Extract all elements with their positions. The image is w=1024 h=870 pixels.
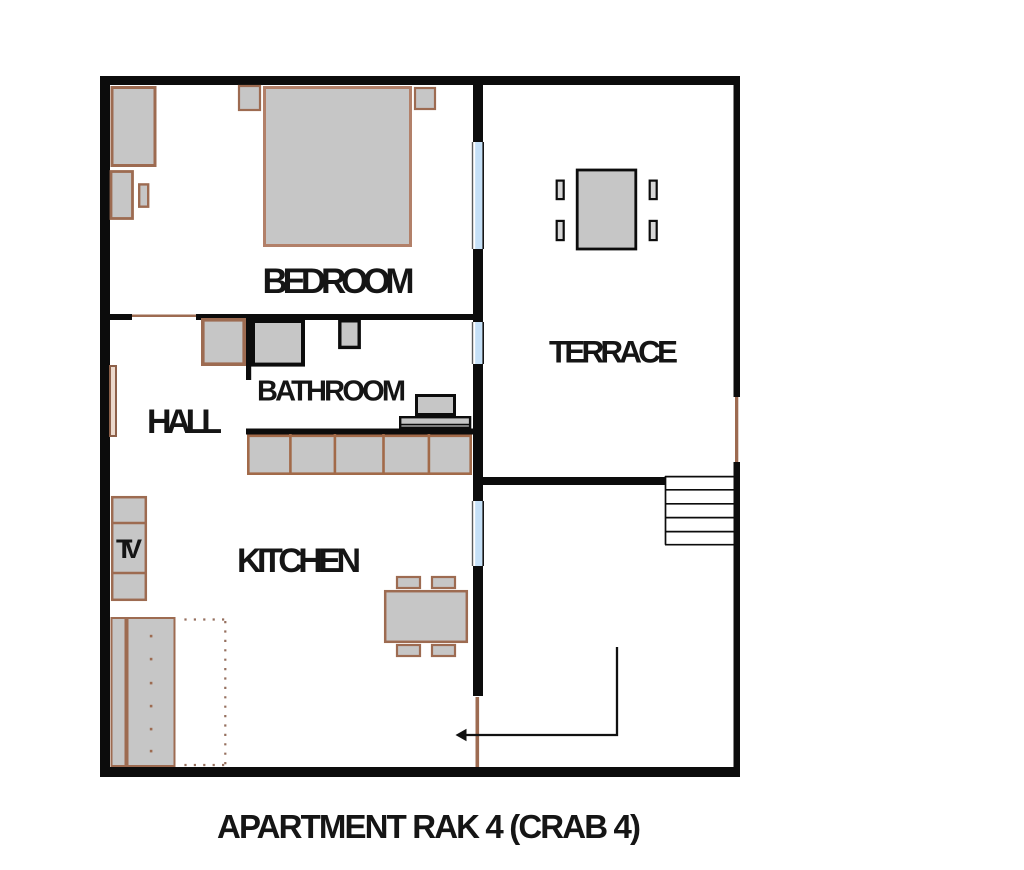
svg-text:TV: TV — [116, 534, 142, 564]
svg-text:BEDROOM: BEDROOM — [263, 262, 415, 301]
svg-text:APARTMENT RAK 4 (CRAB 4): APARTMENT RAK 4 (CRAB 4) — [217, 808, 641, 845]
svg-text:TERRACE: TERRACE — [549, 334, 678, 370]
svg-text:BATHROOM: BATHROOM — [257, 376, 406, 408]
svg-text:KITCHEN: KITCHEN — [237, 542, 361, 580]
svg-text:HALL: HALL — [147, 403, 222, 441]
